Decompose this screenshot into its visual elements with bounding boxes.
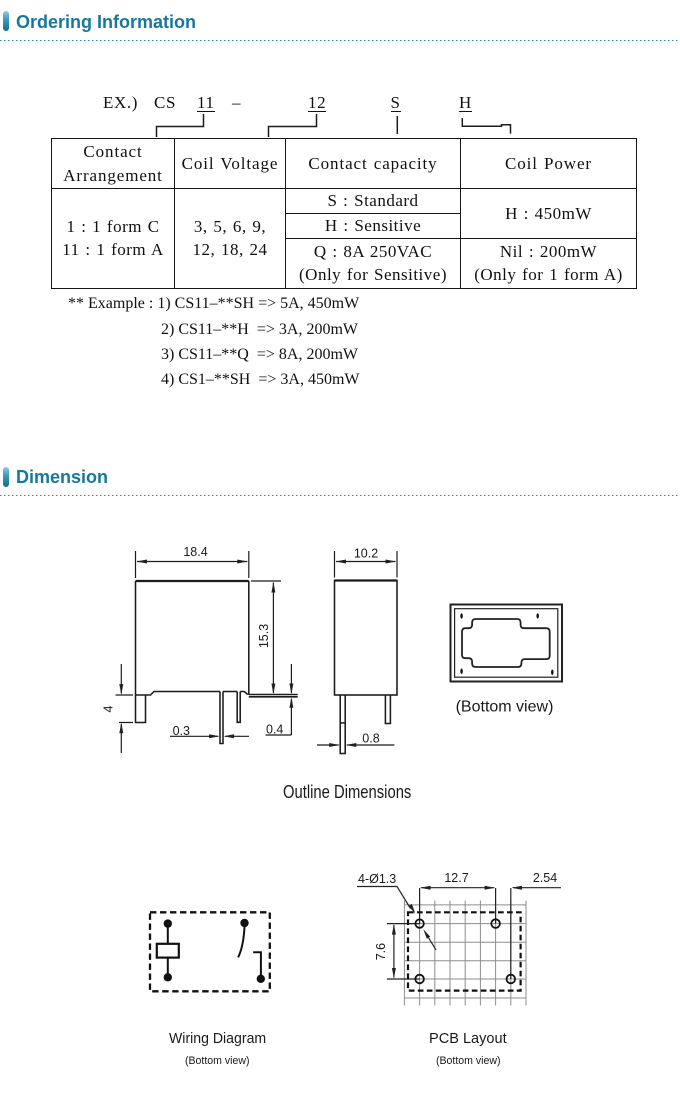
svg-text:0.3: 0.3 bbox=[173, 724, 190, 738]
svg-text:7.6: 7.6 bbox=[374, 943, 388, 960]
svg-text:0.4: 0.4 bbox=[266, 723, 283, 737]
svg-text:0.8: 0.8 bbox=[362, 732, 379, 746]
svg-text:4-Ø1.3: 4-Ø1.3 bbox=[358, 872, 396, 886]
svg-text:10.2: 10.2 bbox=[354, 547, 378, 561]
svg-text:18.4: 18.4 bbox=[183, 545, 207, 559]
svg-text:4: 4 bbox=[102, 705, 116, 712]
svg-text:15.3: 15.3 bbox=[257, 624, 271, 648]
svg-text:2.54: 2.54 bbox=[533, 871, 557, 885]
svg-text:12.7: 12.7 bbox=[444, 871, 468, 885]
svg-text:(Bottom view): (Bottom view) bbox=[456, 698, 554, 715]
